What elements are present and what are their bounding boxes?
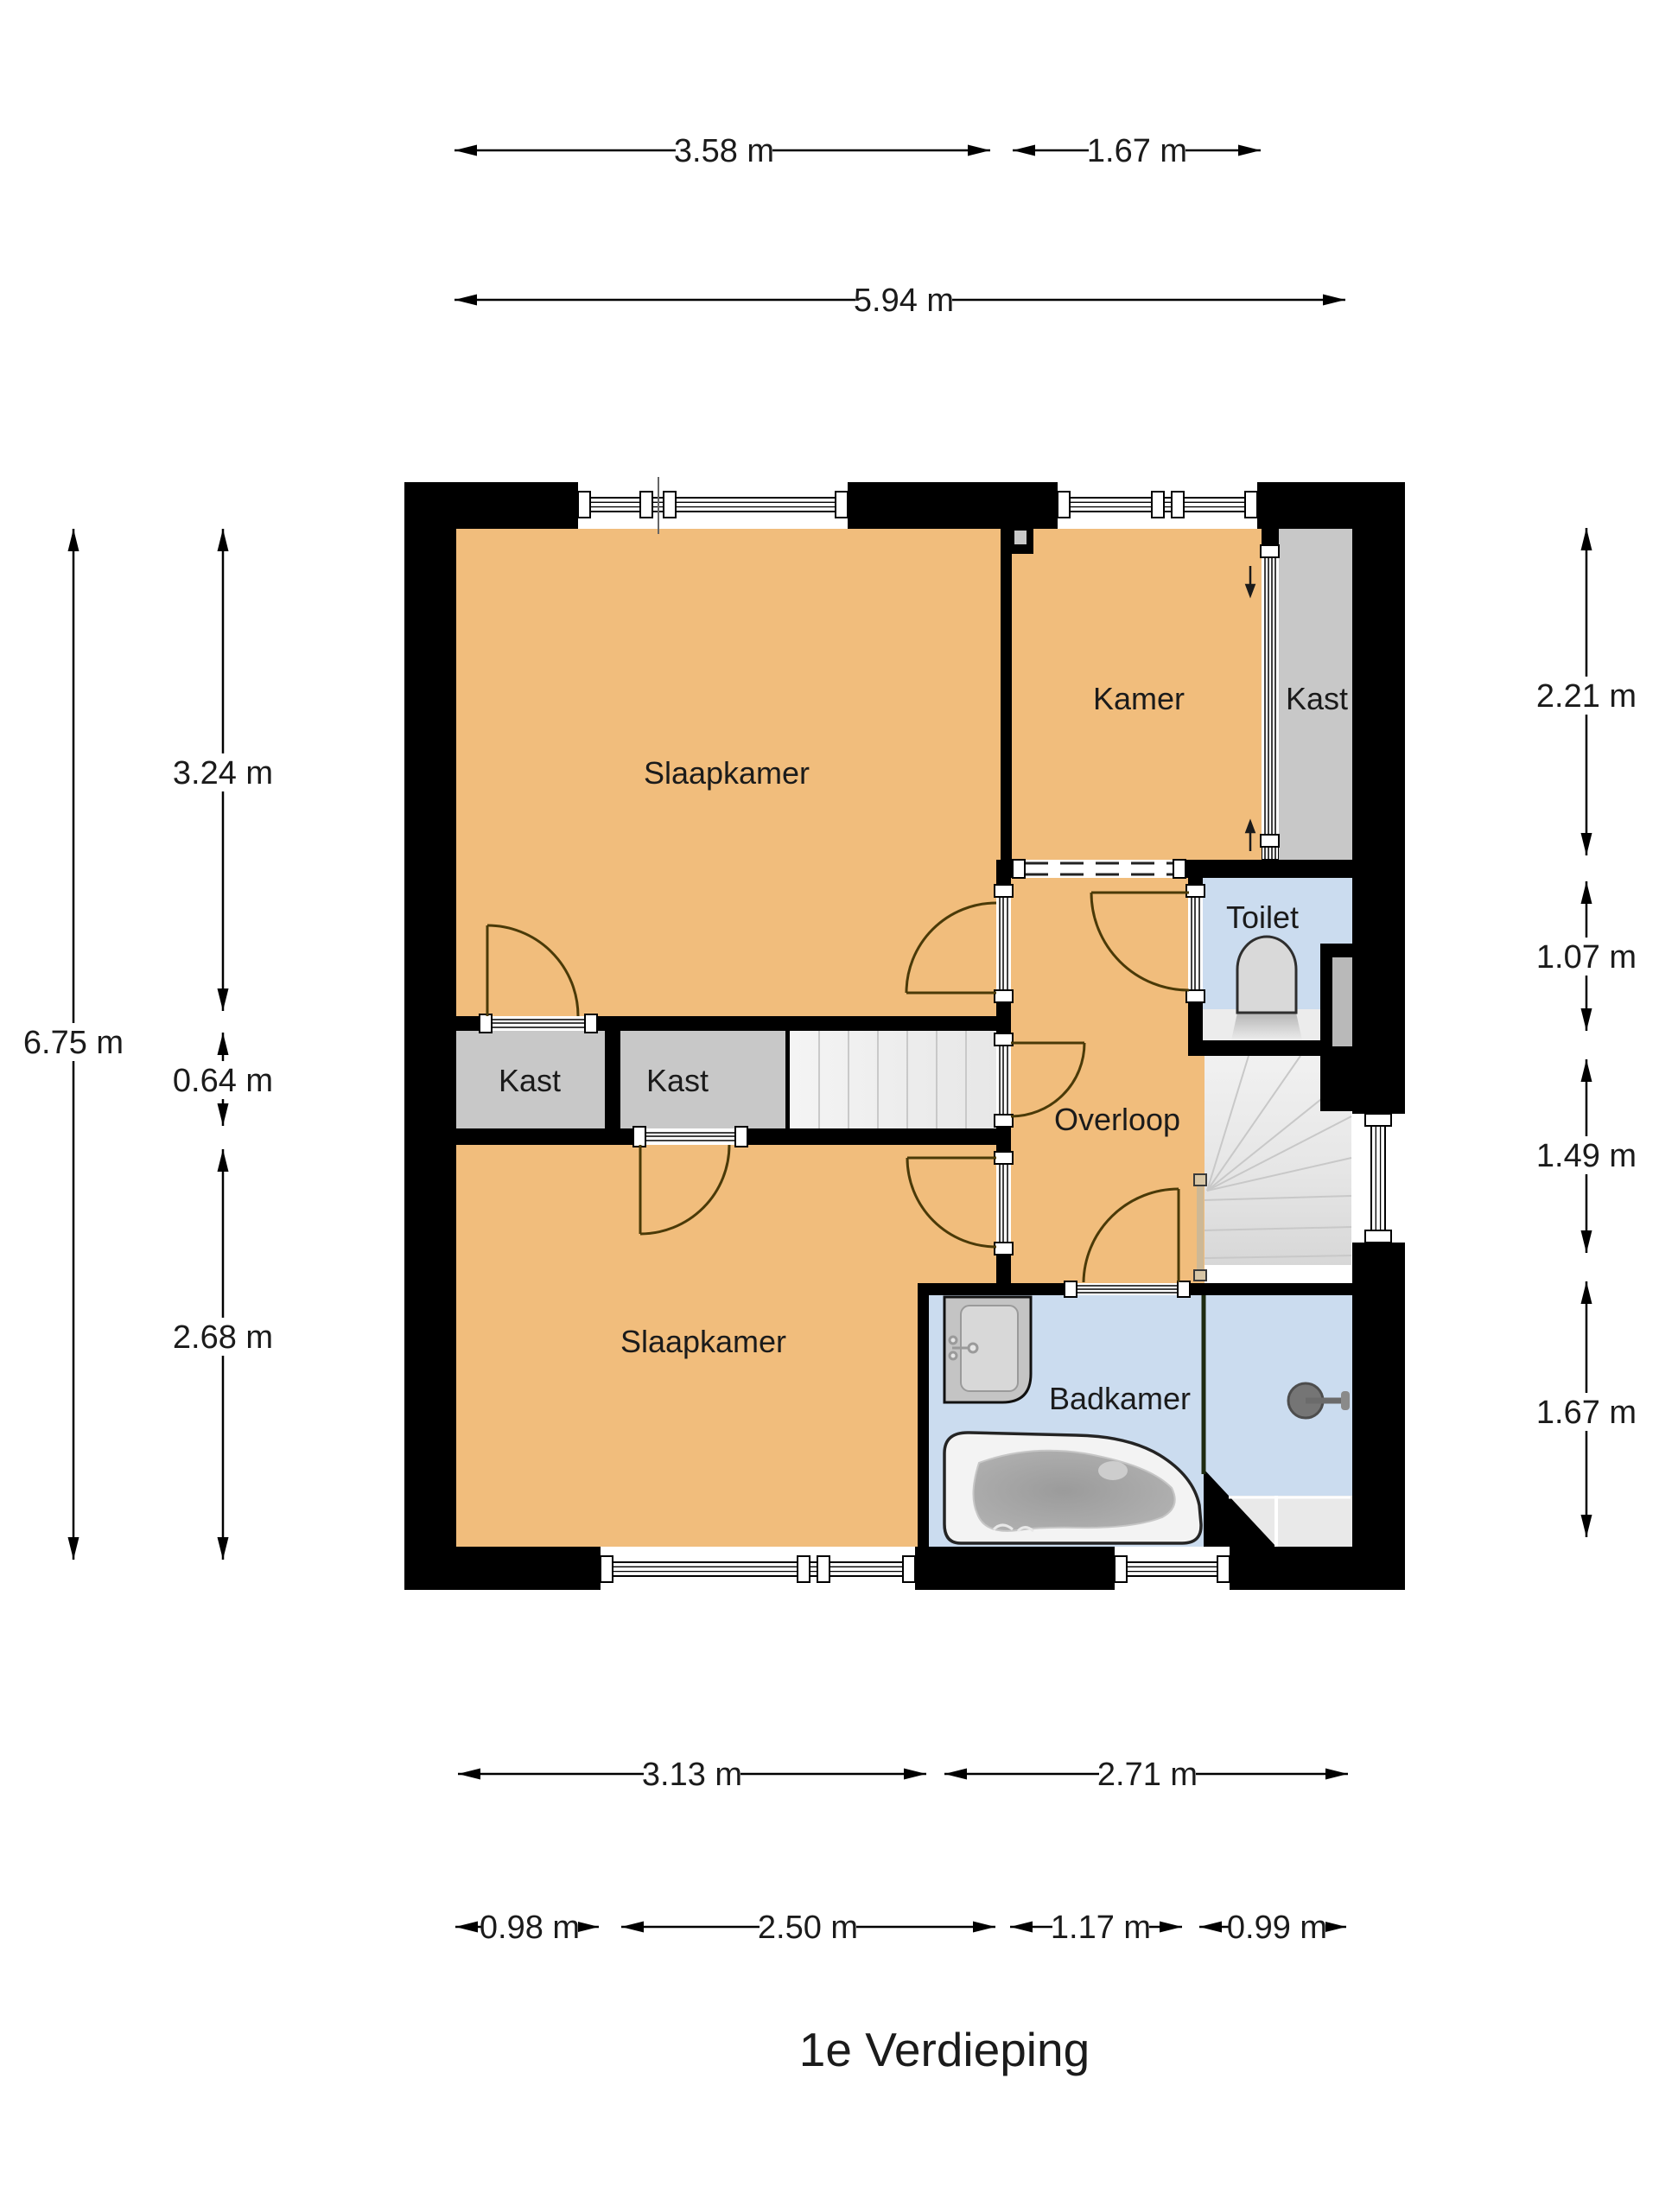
svg-text:Kast: Kast (1286, 681, 1348, 716)
svg-text:Kast: Kast (499, 1063, 561, 1098)
svg-text:Overloop: Overloop (1054, 1102, 1180, 1137)
svg-text:Kast: Kast (646, 1063, 709, 1098)
svg-text:Slaapkamer: Slaapkamer (620, 1324, 786, 1359)
svg-text:2.21 m: 2.21 m (1536, 678, 1637, 715)
svg-text:5.94 m: 5.94 m (854, 283, 954, 319)
svg-text:Kamer: Kamer (1093, 681, 1185, 716)
svg-text:0.99 m: 0.99 m (1227, 1910, 1327, 1946)
svg-text:1.07 m: 1.07 m (1536, 939, 1637, 976)
svg-text:2.68 m: 2.68 m (173, 1319, 273, 1356)
svg-text:1.67 m: 1.67 m (1087, 133, 1187, 169)
svg-text:Toilet: Toilet (1226, 899, 1299, 935)
svg-text:Slaapkamer: Slaapkamer (644, 755, 810, 791)
svg-text:1.49 m: 1.49 m (1536, 1138, 1637, 1174)
svg-text:1.17 m: 1.17 m (1051, 1910, 1151, 1946)
svg-text:Badkamer: Badkamer (1049, 1381, 1191, 1416)
svg-text:1.67 m: 1.67 m (1536, 1395, 1637, 1431)
svg-text:3.24 m: 3.24 m (173, 755, 273, 791)
svg-text:3.13 m: 3.13 m (642, 1757, 742, 1793)
svg-text:2.50 m: 2.50 m (758, 1910, 858, 1946)
svg-text:3.58 m: 3.58 m (674, 133, 774, 169)
svg-text:6.75 m: 6.75 m (23, 1025, 124, 1061)
svg-text:1e Verdieping: 1e Verdieping (799, 2023, 1090, 2076)
svg-text:2.71 m: 2.71 m (1097, 1757, 1198, 1793)
svg-text:0.98 m: 0.98 m (480, 1910, 580, 1946)
svg-text:0.64 m: 0.64 m (173, 1063, 273, 1099)
